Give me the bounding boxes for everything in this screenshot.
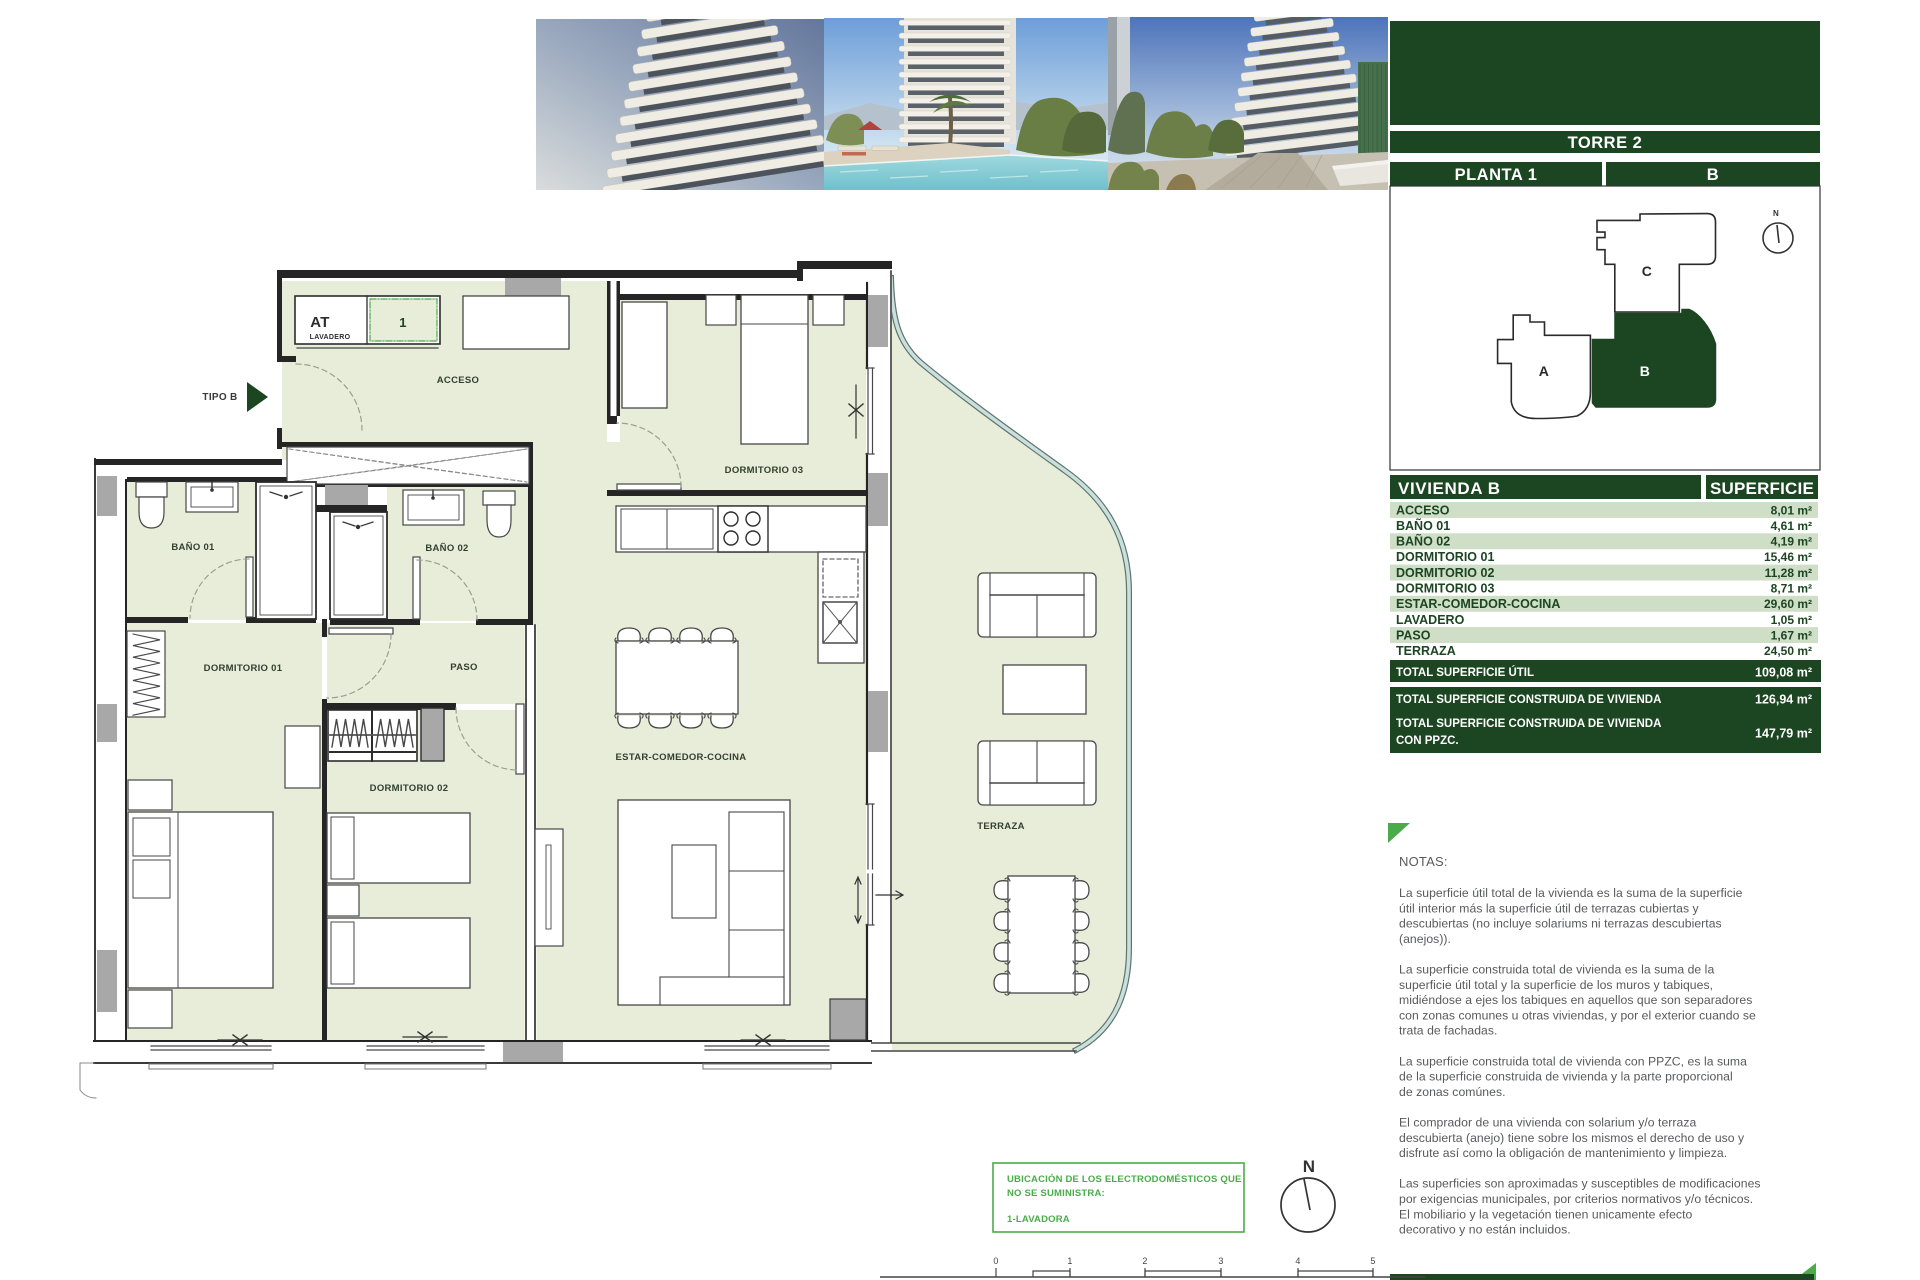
svg-text:(anejos)).: (anejos)).	[1399, 932, 1451, 946]
svg-text:DORMITORIO 01: DORMITORIO 01	[204, 663, 283, 674]
svg-text:LAVADERO: LAVADERO	[310, 334, 351, 341]
svg-text:8,01 m²: 8,01 m²	[1771, 503, 1812, 517]
svg-text:PLANTA 1: PLANTA 1	[1455, 166, 1538, 184]
svg-text:PASO: PASO	[450, 662, 477, 673]
svg-text:TORRE 2: TORRE 2	[1568, 134, 1643, 152]
svg-text:4,61 m²: 4,61 m²	[1771, 519, 1812, 533]
svg-text:UBICACIÓN DE LOS ELECTRODOMÉST: UBICACIÓN DE LOS ELECTRODOMÉSTICOS QUE	[1007, 1173, 1242, 1185]
svg-text:BAÑO 02: BAÑO 02	[1396, 534, 1450, 549]
svg-text:1: 1	[1067, 1256, 1072, 1266]
svg-text:NOTAS:: NOTAS:	[1399, 854, 1448, 869]
svg-text:Las superficies son aproximada: Las superficies son aproximadas y suscep…	[1399, 1177, 1761, 1191]
svg-text:N: N	[1773, 209, 1779, 218]
svg-text:1: 1	[399, 315, 407, 330]
svg-text:8,71 m²: 8,71 m²	[1771, 582, 1812, 596]
svg-text:superficie útil total y la sup: superficie útil total y la superficie de…	[1399, 978, 1713, 992]
svg-text:DORMITORIO 03: DORMITORIO 03	[1396, 582, 1494, 596]
svg-text:DORMITORIO 02: DORMITORIO 02	[1396, 566, 1494, 580]
svg-text:4: 4	[1295, 1256, 1300, 1266]
svg-text:ACCESO: ACCESO	[1396, 503, 1450, 517]
svg-text:BAÑO 01: BAÑO 01	[171, 542, 215, 553]
svg-text:trata de fachadas.: trata de fachadas.	[1399, 1024, 1497, 1038]
svg-text:1,05 m²: 1,05 m²	[1771, 613, 1812, 627]
svg-text:SUPERFICIE: SUPERFICIE	[1710, 479, 1814, 498]
svg-text:por exigencias municipales, po: por exigencias municipales, por criterio…	[1399, 1192, 1753, 1206]
svg-text:147,79 m²: 147,79 m²	[1755, 727, 1812, 741]
svg-text:de la superficie construida de: de la superficie construida de vivienda …	[1399, 1070, 1733, 1084]
svg-text:B: B	[1640, 363, 1650, 379]
svg-text:El comprador de una vivienda c: El comprador de una vivienda con solariu…	[1399, 1116, 1696, 1130]
svg-text:0: 0	[993, 1256, 998, 1266]
svg-text:B: B	[1707, 166, 1719, 184]
svg-text:11,28 m²: 11,28 m²	[1765, 566, 1812, 580]
svg-text:DORMITORIO 02: DORMITORIO 02	[370, 783, 449, 794]
svg-text:descubierta (anejo) tiene sobr: descubierta (anejo) tiene sobre los mism…	[1399, 1131, 1745, 1145]
svg-text:de zonas comúnes.: de zonas comúnes.	[1399, 1085, 1506, 1099]
svg-text:C: C	[1642, 263, 1652, 279]
svg-text:ESTAR-COMEDOR-COCINA: ESTAR-COMEDOR-COCINA	[616, 752, 747, 763]
svg-text:5: 5	[1370, 1256, 1375, 1266]
svg-text:2: 2	[1142, 1256, 1147, 1266]
svg-text:3: 3	[1218, 1256, 1223, 1266]
svg-text:La superficie construida total: La superficie construida total de vivien…	[1399, 963, 1714, 977]
svg-text:1,67 m²: 1,67 m²	[1771, 628, 1812, 642]
svg-text:TOTAL SUPERFICIE ÚTIL: TOTAL SUPERFICIE ÚTIL	[1396, 666, 1534, 679]
svg-text:CON PPZC.: CON PPZC.	[1396, 735, 1459, 747]
svg-text:ESTAR-COMEDOR-COCINA: ESTAR-COMEDOR-COCINA	[1396, 597, 1560, 611]
svg-text:El mobiliario y la vegetación: El mobiliario y la vegetación tienen uni…	[1399, 1207, 1693, 1221]
svg-text:VIVIENDA B: VIVIENDA B	[1398, 479, 1501, 498]
svg-text:15,46 m²: 15,46 m²	[1764, 550, 1812, 564]
svg-text:BAÑO 02: BAÑO 02	[425, 543, 468, 554]
svg-text:TERRAZA: TERRAZA	[977, 821, 1025, 832]
svg-text:LAVADERO: LAVADERO	[1396, 613, 1465, 627]
svg-text:4,19 m²: 4,19 m²	[1771, 535, 1812, 549]
svg-text:TOTAL SUPERFICIE CONSTRUIDA DE: TOTAL SUPERFICIE CONSTRUIDA DE VIVIENDA	[1396, 718, 1661, 730]
svg-text:109,08 m²: 109,08 m²	[1755, 666, 1812, 680]
svg-text:24,50 m²: 24,50 m²	[1764, 644, 1812, 658]
svg-text:La superficie útil total de la: La superficie útil total de la vivienda …	[1399, 886, 1743, 900]
svg-text:BAÑO 01: BAÑO 01	[1396, 518, 1450, 533]
svg-text:La superficie construida total: La superficie construida total de vivien…	[1399, 1054, 1747, 1068]
svg-text:DORMITORIO 01: DORMITORIO 01	[1396, 550, 1494, 564]
svg-text:disfrute así como la obligació: disfrute así como la obligación de mante…	[1399, 1146, 1727, 1160]
svg-text:TERRAZA: TERRAZA	[1396, 644, 1456, 658]
svg-text:1-LAVADORA: 1-LAVADORA	[1007, 1214, 1070, 1225]
svg-text:útil interior más la superfici: útil interior más la superficie útil de …	[1399, 901, 1700, 915]
svg-text:TOTAL SUPERFICIE CONSTRUIDA DE: TOTAL SUPERFICIE CONSTRUIDA DE VIVIENDA	[1396, 694, 1661, 706]
svg-text:midiéndose a ejes los tabiques: midiéndose a ejes los tabiques en aquell…	[1399, 993, 1752, 1007]
svg-text:con zonas comunes u otras vivi: con zonas comunes u otras viviendas, y p…	[1399, 1008, 1756, 1022]
svg-text:TIPO B: TIPO B	[202, 392, 237, 403]
svg-text:DORMITORIO 03: DORMITORIO 03	[725, 465, 804, 476]
svg-text:N: N	[1303, 1157, 1316, 1176]
svg-text:NO SE SUMINISTRA:: NO SE SUMINISTRA:	[1007, 1188, 1105, 1199]
svg-text:126,94 m²: 126,94 m²	[1755, 693, 1812, 707]
svg-text:descubiertas (no incluye solar: descubiertas (no incluye solariums ni te…	[1399, 917, 1722, 931]
svg-text:PASO: PASO	[1396, 628, 1431, 642]
svg-text:decorativo y no están incluido: decorativo y no están incluidos.	[1399, 1223, 1571, 1237]
svg-text:29,60 m²: 29,60 m²	[1764, 597, 1812, 611]
svg-text:A: A	[1539, 363, 1549, 379]
svg-text:ACCESO: ACCESO	[437, 375, 479, 386]
svg-text:AT: AT	[310, 314, 329, 331]
